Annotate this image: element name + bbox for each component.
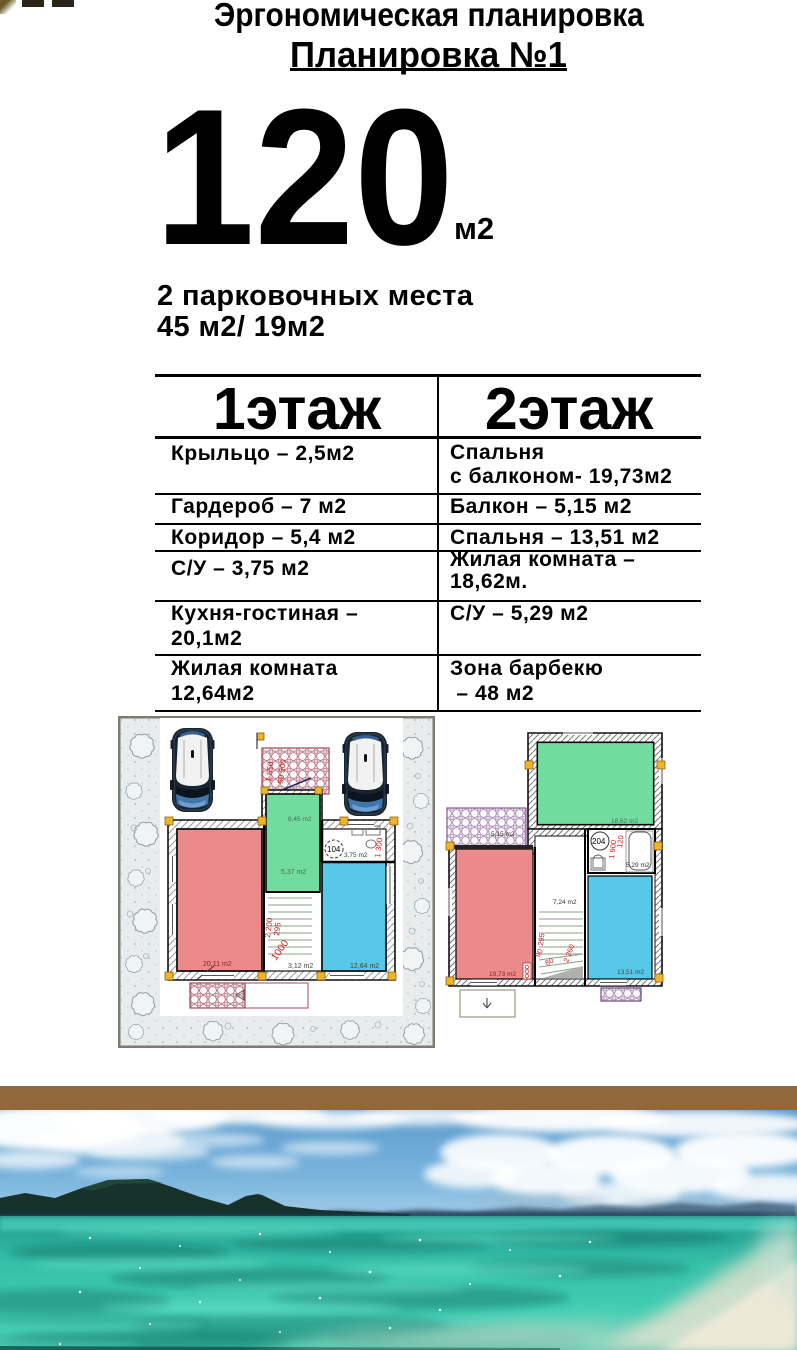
svg-text:120: 120 [615, 835, 625, 849]
svg-text:13,51 m2: 13,51 m2 [617, 969, 644, 976]
svg-text:8,45 m2: 8,45 m2 [288, 816, 312, 823]
svg-text:12,64 m2: 12,64 m2 [350, 963, 379, 970]
svg-text:3,12 m2: 3,12 m2 [288, 963, 313, 970]
svg-text:104: 104 [327, 845, 341, 854]
svg-text:7,24 m2: 7,24 m2 [553, 899, 577, 906]
svg-text:20,11 m2: 20,11 m2 [203, 961, 232, 968]
svg-text:5,37 m2: 5,37 m2 [281, 869, 306, 876]
svg-text:3,75 m2: 3,75 m2 [344, 852, 368, 859]
svg-text:5,15 m2: 5,15 m2 [491, 831, 515, 838]
svg-text:19,73 m2: 19,73 m2 [489, 971, 516, 978]
svg-text:295: 295 [272, 921, 283, 936]
svg-text:18,62 m2: 18,62 m2 [611, 818, 638, 825]
svg-text:204: 204 [592, 837, 606, 846]
svg-text:2 260: 2 260 [561, 943, 576, 964]
svg-text:5,29 m2: 5,29 m2 [626, 862, 650, 869]
svg-text:295: 295 [536, 933, 546, 947]
